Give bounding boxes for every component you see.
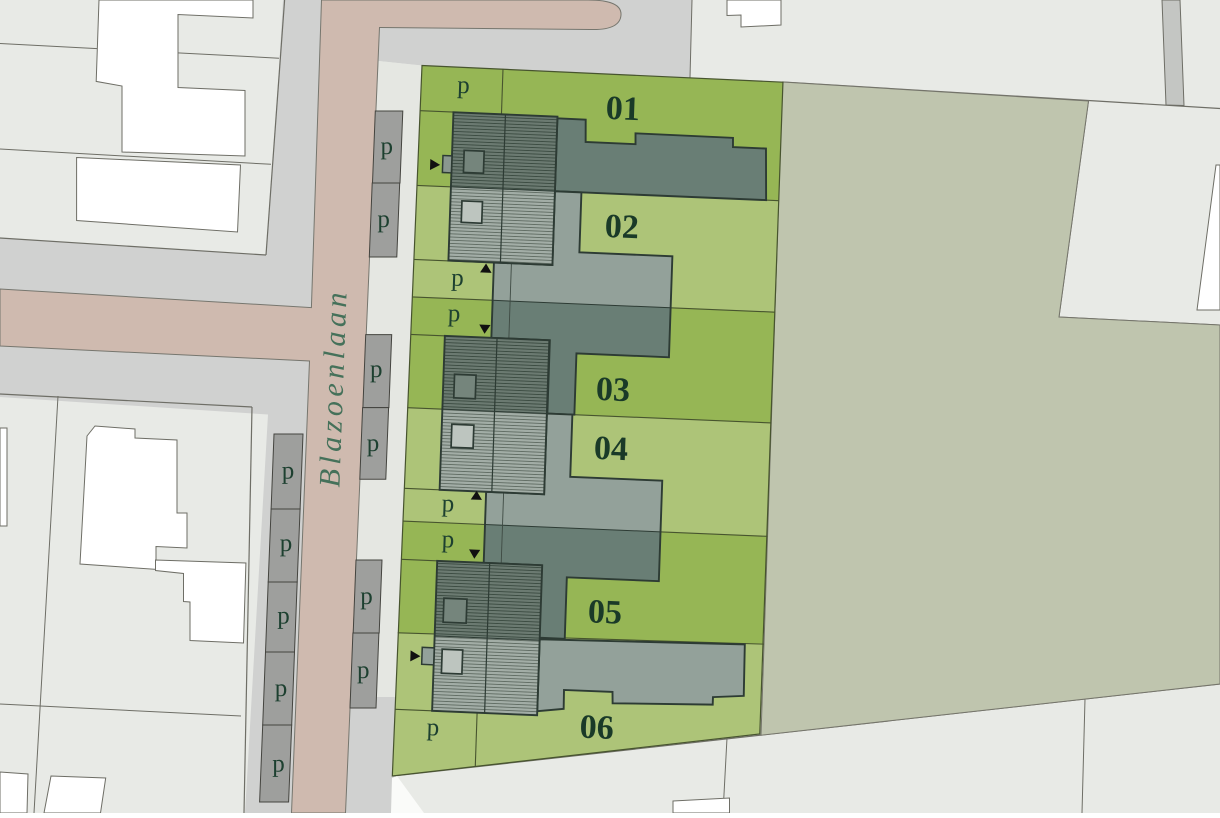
svg-text:p: p (381, 133, 394, 160)
svg-text:p: p (280, 530, 293, 557)
svg-text:p: p (282, 458, 295, 485)
svg-text:p: p (367, 430, 380, 457)
svg-text:p: p (275, 675, 288, 702)
svg-text:p: p (451, 264, 464, 292)
svg-text:p: p (426, 714, 439, 742)
svg-text:p: p (370, 356, 383, 383)
svg-text:p: p (377, 206, 390, 233)
svg-text:p: p (277, 603, 290, 630)
svg-text:04: 04 (593, 430, 628, 468)
svg-text:06: 06 (579, 709, 614, 747)
svg-text:05: 05 (587, 593, 622, 631)
svg-text:p: p (272, 751, 285, 778)
svg-text:01: 01 (605, 90, 640, 128)
svg-text:p: p (447, 300, 460, 328)
svg-text:p: p (457, 72, 470, 100)
svg-text:02: 02 (604, 208, 639, 246)
svg-text:p: p (357, 657, 370, 684)
svg-text:p: p (441, 490, 454, 518)
svg-text:03: 03 (595, 371, 630, 409)
svg-text:p: p (360, 583, 373, 610)
svg-text:p: p (441, 526, 454, 554)
